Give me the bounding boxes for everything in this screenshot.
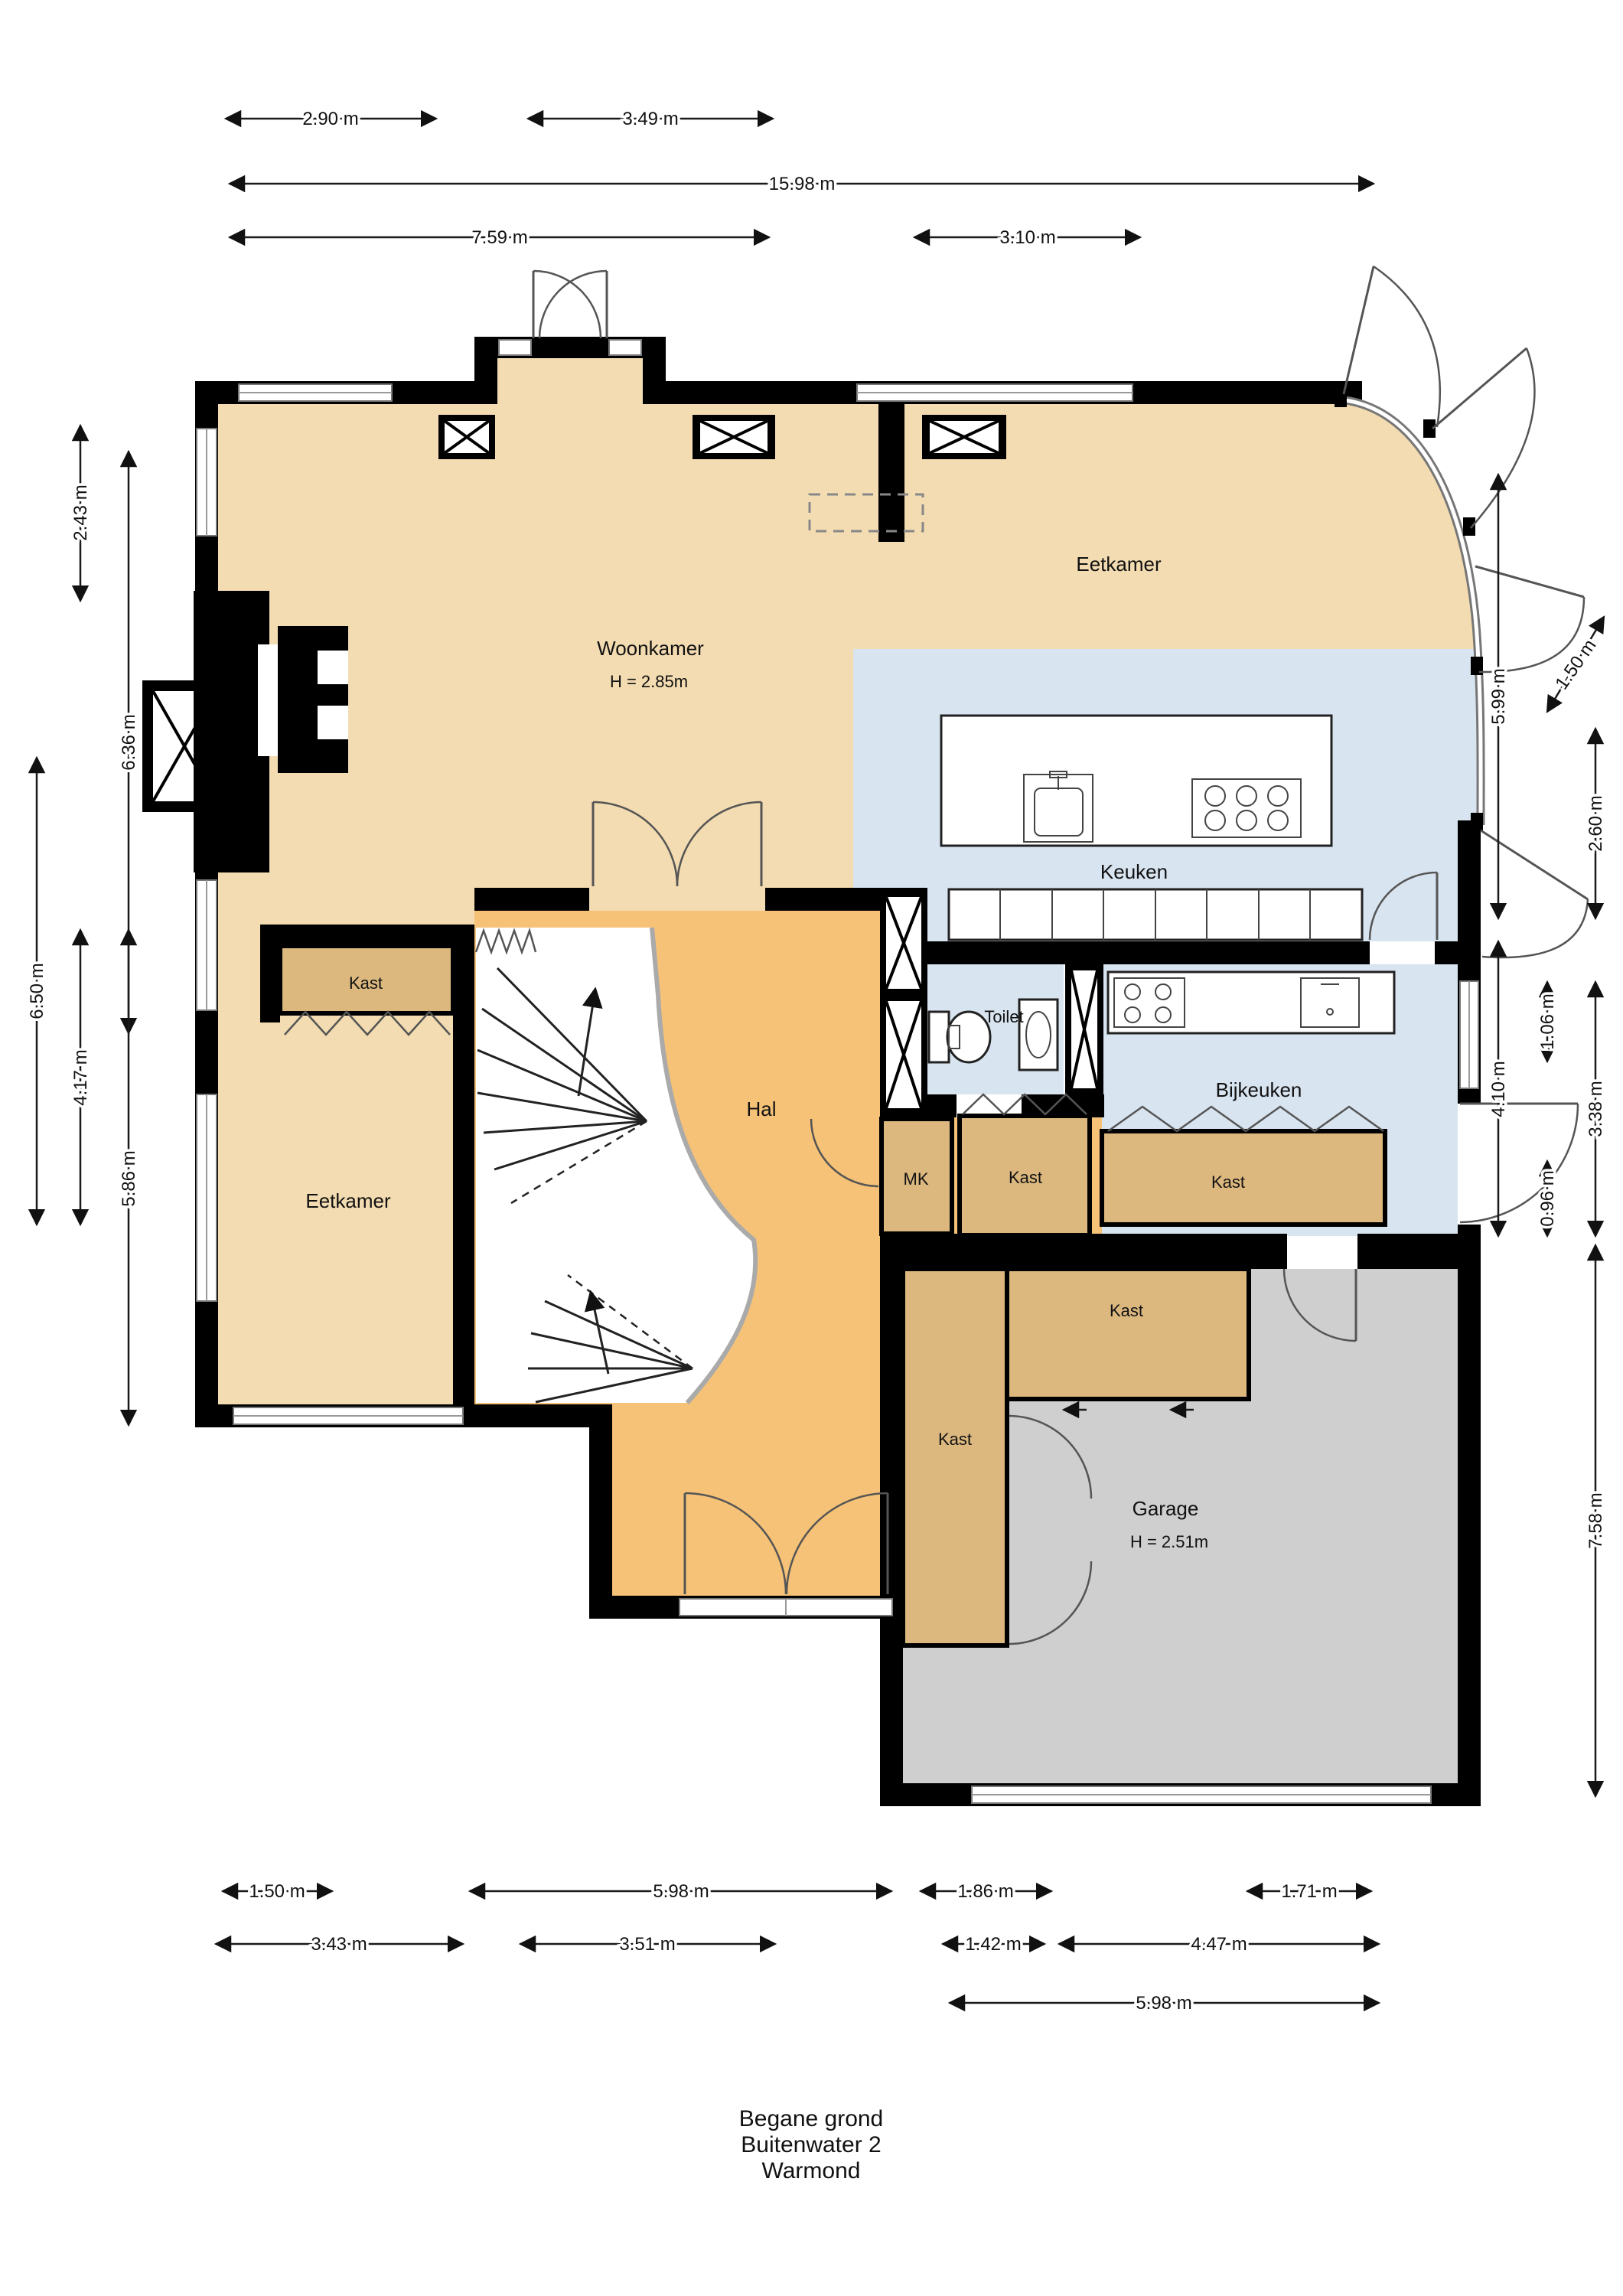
dimension: 1.42 m — [943, 1934, 1045, 1955]
toilet-label: Toilet — [984, 1007, 1023, 1026]
svg-text:15.98 m: 15.98 m — [769, 174, 836, 194]
mk-label: MK — [904, 1169, 929, 1189]
dimension: 4.47 m — [1059, 1934, 1379, 1955]
vent-shaft-icon — [922, 415, 1006, 459]
dimension: 3.43 m — [216, 1934, 463, 1955]
window-icon — [197, 429, 217, 536]
dimension: 6.50 m — [27, 758, 47, 1225]
svg-text:3.38 m: 3.38 m — [1586, 1081, 1606, 1137]
svg-text:3.49 m: 3.49 m — [622, 109, 678, 129]
woonkamer-label: Woonkamer — [597, 637, 704, 660]
dimension: 1.06 m — [1537, 982, 1558, 1062]
window-icon — [197, 1094, 217, 1301]
woonkamer-bay-floor — [497, 357, 643, 410]
floor-plan-drawing: Woonkamer H = 2.85m Eetkamer Keuken Eetk… — [0, 0, 1623, 2296]
dimension: 1.50 m — [223, 1881, 332, 1902]
hal-label: Hal — [746, 1097, 776, 1120]
svg-text:4.17 m: 4.17 m — [70, 1049, 91, 1105]
dimension: 3.38 m — [1586, 982, 1606, 1236]
dimension: 7.58 m — [1586, 1245, 1606, 1796]
svg-text:5.86 m: 5.86 m — [119, 1150, 139, 1206]
closet-label: Kast — [1110, 1301, 1143, 1320]
room-floors — [218, 357, 1481, 1783]
title-line-3: Warmond — [762, 2158, 861, 2183]
garage-height-label: H = 2.51m — [1130, 1532, 1208, 1551]
closet-label: Kast — [349, 974, 383, 993]
svg-text:2.90 m: 2.90 m — [302, 109, 358, 129]
svg-text:4.10 m: 4.10 m — [1488, 1061, 1509, 1117]
svg-text:7.59 m: 7.59 m — [471, 227, 527, 248]
closet-garage-top — [1007, 1269, 1249, 1399]
vent-shaft-icon — [438, 415, 495, 459]
dimension: 3.49 m — [528, 109, 773, 129]
bijkeuken-exterior-door-icon — [1460, 1104, 1578, 1222]
dimension: 1.50 m — [1547, 617, 1604, 712]
washbasin-icon — [1019, 1000, 1058, 1070]
closet-garage-left — [903, 1269, 1007, 1645]
window-icon — [233, 1407, 463, 1424]
dimension: 4.17 m — [70, 930, 91, 1225]
title-line-1: Begane grond — [739, 2106, 884, 2131]
svg-text:1.50 m: 1.50 m — [1551, 635, 1600, 693]
svg-text:4.47 m: 4.47 m — [1191, 1934, 1247, 1955]
eetkamer-top-label: Eetkamer — [1076, 553, 1162, 576]
svg-text:7.58 m: 7.58 m — [1586, 1492, 1606, 1548]
dimension: 1.86 m — [921, 1881, 1051, 1902]
svg-text:3.51 m: 3.51 m — [619, 1934, 675, 1955]
bijkeuken-counter — [1108, 972, 1394, 1033]
window-icon — [197, 880, 217, 1010]
keuken-label: Keuken — [1100, 860, 1168, 883]
svg-text:5.98 m: 5.98 m — [653, 1881, 709, 1902]
title-line-2: Buitenwater 2 — [741, 2132, 881, 2157]
svg-text:2.43 m: 2.43 m — [70, 484, 91, 540]
floor-plan-page: Woonkamer H = 2.85m Eetkamer Keuken Eetk… — [0, 0, 1623, 2296]
svg-text:1.06 m: 1.06 m — [1537, 993, 1558, 1049]
closet-label: Kast — [1009, 1168, 1042, 1187]
dimension: 15.98 m — [230, 174, 1374, 194]
kitchen-counter — [949, 889, 1362, 940]
dimension: 5.98 m — [950, 1993, 1379, 2014]
svg-text:1.71 m: 1.71 m — [1281, 1881, 1337, 1902]
garage-label: Garage — [1133, 1497, 1199, 1520]
dimension: 4.10 m — [1488, 941, 1509, 1236]
svg-text:1.50 m: 1.50 m — [249, 1881, 305, 1902]
dimension: 3.10 m — [914, 227, 1140, 248]
dimension: 5.98 m — [470, 1881, 891, 1902]
closet-label: Kast — [938, 1430, 972, 1449]
entry-door-glass-icon — [680, 1599, 892, 1616]
svg-text:3.10 m: 3.10 m — [999, 227, 1055, 248]
dimension: 5.86 m — [119, 930, 139, 1425]
dimension: 2.60 m — [1586, 729, 1606, 918]
toilet-icon — [929, 1012, 990, 1062]
svg-text:1.42 m: 1.42 m — [965, 1934, 1021, 1955]
svg-text:6.50 m: 6.50 m — [27, 963, 47, 1019]
window-icon — [1460, 981, 1478, 1088]
svg-text:2.60 m: 2.60 m — [1586, 795, 1606, 851]
dimension: 7.59 m — [230, 227, 769, 248]
dimension: 1.71 m — [1247, 1881, 1371, 1902]
dimension: 2.90 m — [226, 109, 436, 129]
dimension: 2.43 m — [70, 426, 91, 601]
bijkeuken-label: Bijkeuken — [1216, 1078, 1302, 1101]
kitchen-island — [941, 716, 1331, 846]
woonkamer-height-label: H = 2.85m — [610, 672, 688, 691]
window-icon — [239, 384, 392, 401]
eetkamer-left-label: Eetkamer — [305, 1189, 391, 1212]
window-icon — [857, 384, 1133, 401]
svg-text:5.98 m: 5.98 m — [1136, 1993, 1191, 2014]
garage-door-icon — [972, 1786, 1431, 1803]
dimension: 0.96 m — [1537, 1161, 1558, 1236]
svg-text:1.86 m: 1.86 m — [957, 1881, 1013, 1902]
svg-text:0.96 m: 0.96 m — [1537, 1170, 1558, 1226]
plan-title: Begane grond Buitenwater 2 Warmond — [739, 2106, 884, 2183]
closet-label: Kast — [1211, 1172, 1245, 1192]
vent-shaft-icon — [693, 415, 775, 459]
dimension: 5.99 m — [1488, 475, 1509, 918]
svg-text:5.99 m: 5.99 m — [1488, 668, 1509, 724]
dimension: 3.51 m — [520, 1934, 775, 1955]
svg-text:6.36 m: 6.36 m — [119, 714, 139, 770]
svg-text:3.43 m: 3.43 m — [311, 1934, 367, 1955]
french-door-icon — [533, 271, 607, 338]
hal-lower-floor — [612, 1404, 880, 1596]
